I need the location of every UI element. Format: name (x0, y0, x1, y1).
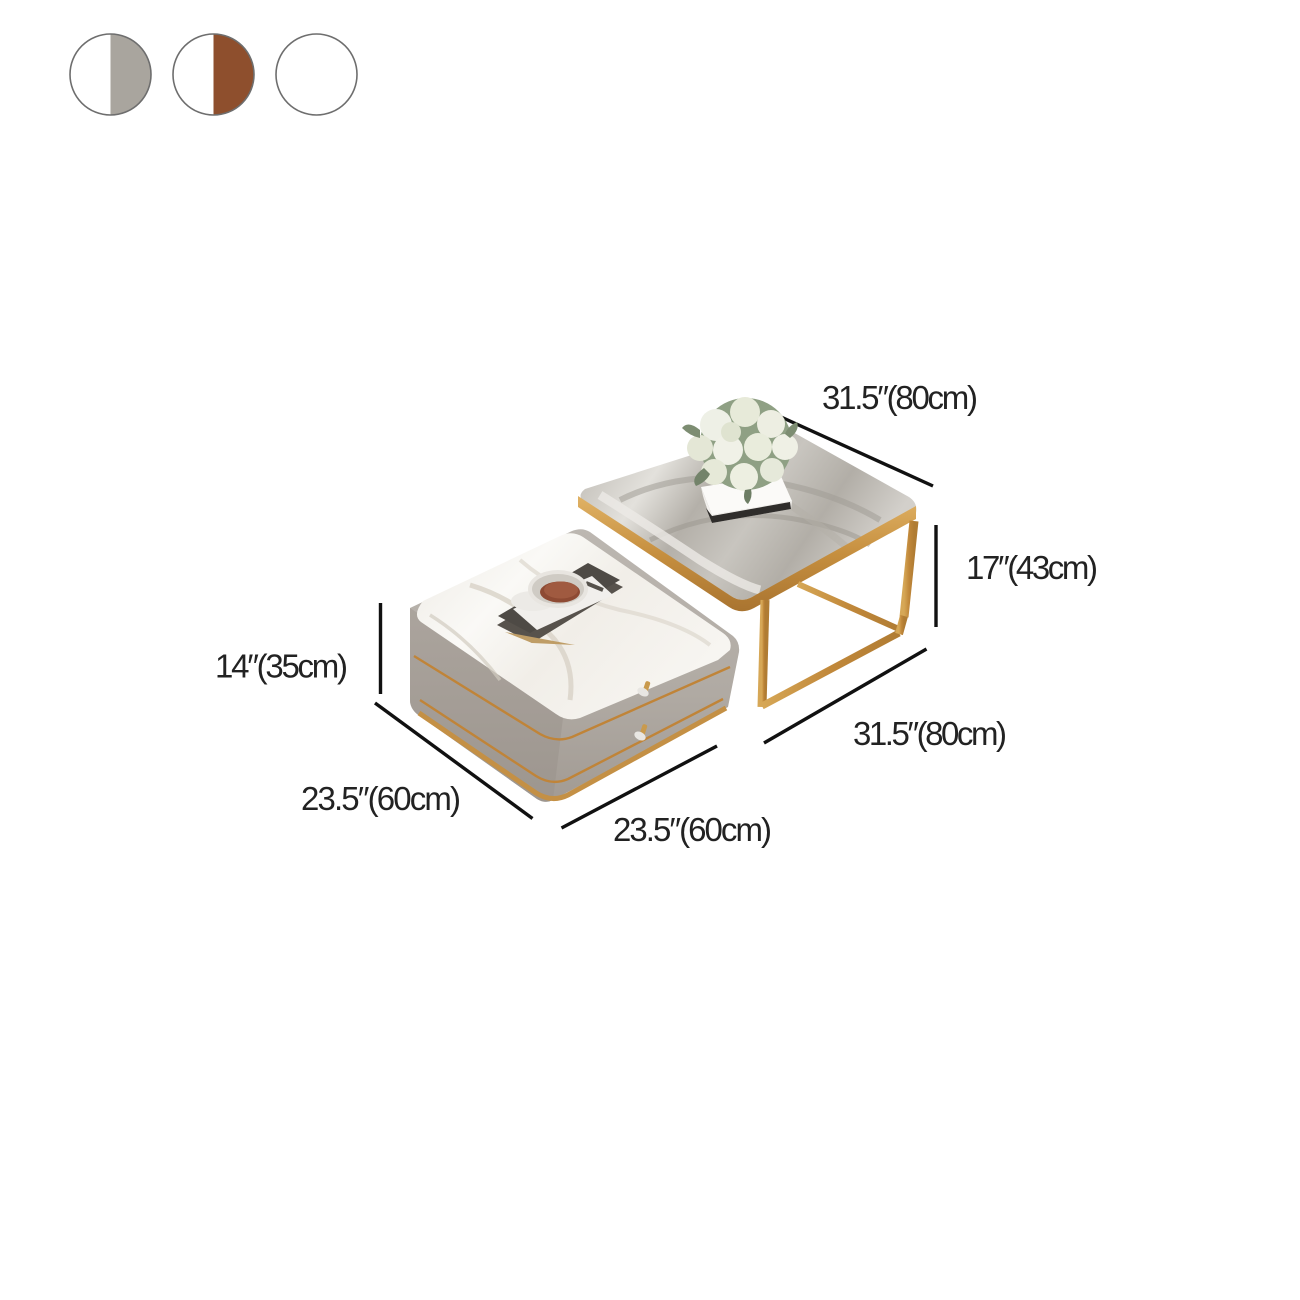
svg-text:31.5″(80cm): 31.5″(80cm) (853, 715, 1007, 752)
svg-text:23.5″(60cm): 23.5″(60cm) (613, 811, 772, 848)
svg-text:31.5″(80cm): 31.5″(80cm) (822, 379, 978, 416)
svg-text:14″(35cm): 14″(35cm) (215, 648, 348, 685)
svg-text:23.5″(60cm): 23.5″(60cm) (301, 780, 461, 817)
svg-text:17″(43cm): 17″(43cm) (966, 549, 1098, 586)
